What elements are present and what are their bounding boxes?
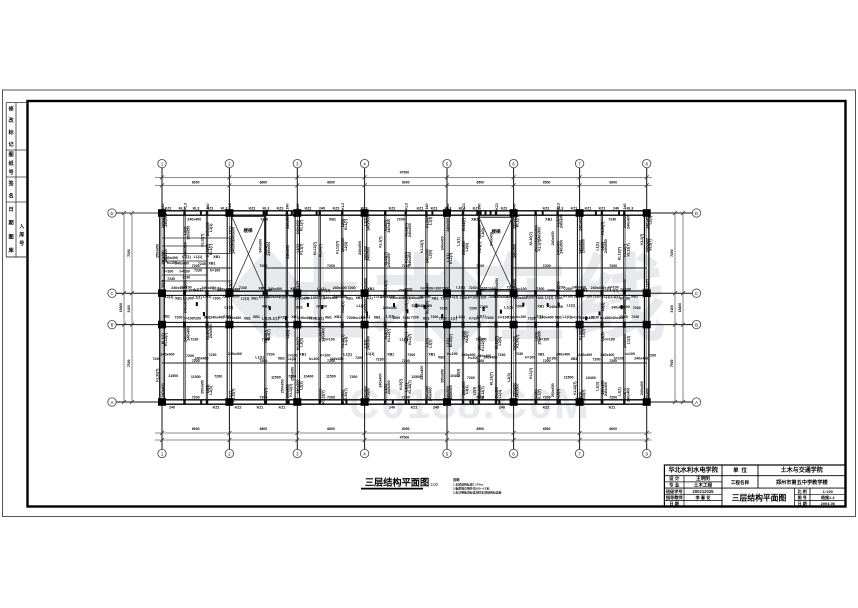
svg-text:KL12(7): KL12(7) — [408, 380, 412, 394]
svg-text:6600: 6600 — [192, 180, 200, 184]
svg-text:7200: 7200 — [279, 296, 287, 300]
svg-text:7200: 7200 — [232, 295, 240, 299]
svg-text:240x400: 240x400 — [333, 286, 347, 290]
svg-text:240: 240 — [433, 406, 439, 410]
svg-text:说明:: 说明: — [453, 477, 460, 482]
svg-text:8000: 8000 — [402, 180, 410, 184]
svg-text:XB1: XB1 — [209, 262, 216, 266]
svg-text:L1(1): L1(1) — [364, 296, 373, 300]
svg-text:KL3: KL3 — [557, 207, 564, 211]
svg-text:7200: 7200 — [193, 316, 201, 320]
svg-text:XB1: XB1 — [428, 352, 435, 356]
svg-text:记: 记 — [8, 140, 14, 148]
svg-text:期: 期 — [8, 219, 13, 227]
svg-text:7200: 7200 — [476, 264, 484, 268]
svg-text:240x400: 240x400 — [600, 353, 614, 357]
svg-text:KZ2: KZ2 — [389, 207, 396, 211]
svg-text:KZ1: KZ1 — [473, 207, 480, 211]
svg-text:XB1: XB1 — [258, 287, 265, 291]
svg-text:240x400: 240x400 — [183, 299, 187, 313]
svg-text:7200: 7200 — [175, 316, 183, 320]
svg-text:7200: 7200 — [402, 264, 410, 268]
svg-text:L1(1): L1(1) — [366, 352, 375, 356]
svg-text:11500: 11500 — [271, 376, 281, 380]
svg-text:KZ1: KZ1 — [279, 406, 286, 410]
svg-text:250x650: 250x650 — [280, 379, 284, 393]
svg-text:240x400: 240x400 — [440, 236, 444, 250]
svg-text:KL1(7): KL1(7) — [538, 388, 542, 400]
svg-text:XB1: XB1 — [296, 305, 303, 309]
svg-text:240x500: 240x500 — [560, 240, 564, 254]
svg-text:7200: 7200 — [288, 375, 296, 379]
svg-text:240x400: 240x400 — [579, 217, 583, 231]
svg-text:KL12(7): KL12(7) — [489, 371, 493, 385]
svg-text:240x600: 240x600 — [231, 227, 235, 241]
svg-text:240x400: 240x400 — [540, 316, 554, 320]
svg-text:7200: 7200 — [441, 287, 449, 291]
svg-text:240x500: 240x500 — [604, 239, 608, 253]
svg-text:7200: 7200 — [259, 264, 267, 268]
svg-text:L1(1): L1(1) — [203, 295, 212, 299]
svg-text:10400: 10400 — [450, 374, 460, 378]
svg-text:C: C — [695, 291, 698, 296]
svg-text:L2(3): L2(3) — [649, 215, 653, 224]
svg-text:7500: 7500 — [670, 359, 674, 367]
svg-text:240x600: 240x600 — [367, 388, 371, 402]
svg-text:240x400: 240x400 — [161, 383, 165, 397]
svg-text:240x400: 240x400 — [367, 336, 371, 350]
svg-text:专 业: 专 业 — [669, 481, 680, 488]
svg-text:240: 240 — [319, 207, 325, 211]
svg-text:7200: 7200 — [327, 396, 335, 400]
svg-text:L2(3): L2(3) — [582, 328, 586, 337]
svg-text:XB1: XB1 — [471, 218, 478, 222]
svg-text:土木与交通学院: 土木与交通学院 — [781, 466, 823, 474]
svg-text:240x500: 240x500 — [286, 215, 290, 229]
svg-text:240x600: 240x600 — [560, 214, 564, 228]
svg-text:7230: 7230 — [376, 358, 384, 362]
svg-text:7500: 7500 — [127, 359, 131, 367]
svg-text:7230: 7230 — [167, 277, 175, 281]
svg-text:240x400: 240x400 — [227, 316, 241, 320]
svg-text:7200: 7200 — [402, 359, 410, 363]
svg-text:L1(1): L1(1) — [450, 295, 459, 299]
svg-text:7230: 7230 — [262, 338, 270, 342]
svg-text:7200: 7200 — [574, 295, 582, 299]
svg-text:XB1: XB1 — [253, 315, 260, 319]
svg-text:7200: 7200 — [592, 358, 600, 362]
svg-text:7200: 7200 — [479, 295, 487, 299]
svg-text:KZ2: KZ2 — [235, 406, 242, 410]
svg-text:XB1: XB1 — [334, 315, 341, 319]
svg-text:240x500: 240x500 — [231, 240, 235, 254]
svg-text:L1(1): L1(1) — [357, 304, 366, 308]
svg-text:7200: 7200 — [259, 396, 267, 400]
svg-text:240x400: 240x400 — [387, 380, 391, 394]
svg-text:KL12(7): KL12(7) — [626, 243, 630, 257]
svg-text:7200: 7200 — [441, 296, 449, 300]
svg-text:7200: 7200 — [260, 218, 268, 222]
svg-text:L1(1): L1(1) — [193, 296, 202, 300]
svg-text:250x650: 250x650 — [440, 369, 444, 383]
svg-text:KZ1: KZ1 — [257, 406, 264, 410]
svg-text:6500: 6500 — [543, 427, 551, 431]
svg-text:KL12(7): KL12(7) — [618, 246, 622, 260]
svg-text:7230: 7230 — [469, 286, 477, 290]
svg-text:250x650: 250x650 — [155, 244, 159, 258]
svg-text:L1(1): L1(1) — [428, 339, 432, 348]
svg-text:L1(1): L1(1) — [315, 317, 324, 321]
svg-text:6600: 6600 — [327, 427, 335, 431]
svg-text:6600: 6600 — [260, 180, 268, 184]
svg-text:L2(3): L2(3) — [601, 302, 605, 311]
svg-text:h=100: h=100 — [477, 286, 487, 290]
svg-text:L1(1): L1(1) — [567, 304, 576, 308]
svg-text:h=100: h=100 — [183, 317, 193, 321]
svg-text:240: 240 — [425, 204, 429, 210]
svg-text:KL1(7): KL1(7) — [408, 333, 412, 345]
svg-text:h=100: h=100 — [210, 269, 220, 273]
svg-text:11500: 11500 — [326, 374, 336, 378]
svg-text:李 春 花: 李 春 花 — [695, 494, 712, 501]
svg-text:7200: 7200 — [476, 396, 484, 400]
svg-text:3.未注明板顶标高均同本层结构标高处: 3.未注明板顶标高均同本层结构标高处 — [453, 490, 502, 495]
svg-text:7200: 7200 — [648, 353, 656, 357]
svg-text:240x400: 240x400 — [626, 388, 630, 402]
svg-text:L1(1): L1(1) — [595, 241, 599, 250]
svg-text:KZ1: KZ1 — [599, 207, 606, 211]
svg-text:7230: 7230 — [222, 295, 230, 299]
svg-text:7200: 7200 — [543, 396, 551, 400]
svg-text:240x600: 240x600 — [164, 213, 168, 227]
svg-text:KZ1: KZ1 — [585, 207, 592, 211]
svg-text:XB1: XB1 — [163, 315, 170, 319]
svg-text:KL5(7): KL5(7) — [405, 299, 409, 311]
svg-text:7230: 7230 — [182, 276, 190, 280]
svg-text:KL5(7): KL5(7) — [341, 301, 345, 313]
svg-text:签: 签 — [7, 179, 14, 187]
svg-text:7200: 7200 — [355, 356, 363, 360]
svg-text:240x400: 240x400 — [390, 296, 404, 300]
svg-text:号: 号 — [8, 168, 13, 176]
svg-text:7200: 7200 — [536, 296, 544, 300]
svg-text:XB1: XB1 — [251, 296, 258, 300]
svg-text:47000: 47000 — [400, 171, 410, 175]
svg-text:240: 240 — [389, 406, 395, 410]
svg-text:h=100: h=100 — [547, 356, 557, 360]
svg-text:KL12(7): KL12(7) — [573, 381, 577, 395]
svg-text:240x600: 240x600 — [408, 223, 412, 237]
svg-text:7200: 7200 — [620, 315, 628, 319]
svg-text:6600: 6600 — [260, 427, 268, 431]
svg-text:h=100: h=100 — [608, 286, 618, 290]
svg-text:240: 240 — [296, 204, 300, 210]
svg-text:L1(1): L1(1) — [456, 315, 465, 319]
svg-text:h=100: h=100 — [516, 287, 526, 291]
svg-text:L2(3): L2(3) — [498, 336, 502, 345]
svg-text:240x400: 240x400 — [379, 374, 383, 388]
svg-text:L1(1): L1(1) — [428, 216, 432, 225]
svg-text:KZ1: KZ1 — [495, 203, 499, 210]
svg-text:7230: 7230 — [440, 307, 448, 311]
svg-text:7230: 7230 — [239, 286, 247, 290]
svg-text:日 期: 日 期 — [798, 500, 807, 506]
svg-text:XB1: XB1 — [290, 287, 297, 291]
svg-text:KL1(7): KL1(7) — [516, 215, 520, 227]
svg-text:7230: 7230 — [194, 269, 202, 273]
svg-text:L1(1): L1(1) — [498, 389, 502, 398]
svg-text:KL30(7): KL30(7) — [344, 388, 348, 402]
svg-text:7200: 7200 — [547, 289, 555, 293]
svg-text:240x600: 240x600 — [646, 388, 650, 402]
svg-text:A: A — [111, 400, 114, 405]
svg-text:库: 库 — [8, 246, 14, 254]
svg-text:KL3: KL3 — [405, 203, 409, 210]
svg-text:240x400: 240x400 — [484, 356, 498, 360]
svg-text:XB1: XB1 — [555, 315, 562, 319]
svg-text:7200: 7200 — [467, 376, 475, 380]
svg-text:L1(1): L1(1) — [504, 306, 513, 310]
svg-text:h=100: h=100 — [582, 295, 592, 299]
svg-text:240x500: 240x500 — [513, 244, 517, 258]
svg-text:KL1(7): KL1(7) — [299, 219, 303, 231]
svg-text:B: B — [695, 322, 698, 327]
svg-text:7230: 7230 — [153, 357, 161, 361]
svg-text:日 期: 日 期 — [669, 500, 679, 507]
svg-text:纸: 纸 — [8, 159, 14, 167]
svg-text:L1(1): L1(1) — [194, 255, 203, 259]
svg-text:KZ1: KZ1 — [417, 207, 424, 211]
svg-text:KL3: KL3 — [193, 207, 200, 211]
svg-text:240: 240 — [512, 204, 516, 210]
svg-text:7200: 7200 — [213, 296, 221, 300]
svg-text:7200: 7200 — [347, 316, 355, 320]
svg-text:KZ2: KZ2 — [543, 207, 550, 211]
svg-text:XB1: XB1 — [299, 352, 306, 356]
svg-text:XB1: XB1 — [438, 356, 445, 360]
svg-text:7200: 7200 — [507, 286, 515, 290]
svg-text:240x400: 240x400 — [549, 305, 563, 309]
svg-text:工程名称: 工程名称 — [731, 479, 750, 486]
svg-text:KL1(7): KL1(7) — [379, 236, 383, 248]
svg-text:8000: 8000 — [402, 427, 410, 431]
svg-text:240x500: 240x500 — [367, 217, 371, 231]
svg-text:KL12(7): KL12(7) — [646, 278, 650, 292]
svg-text:L1(1): L1(1) — [317, 287, 326, 291]
svg-text:7230: 7230 — [593, 295, 601, 299]
svg-text:240x400: 240x400 — [387, 219, 391, 233]
svg-text:h=100: h=100 — [183, 296, 193, 300]
svg-text:7200: 7200 — [349, 375, 357, 379]
svg-text:KL1(7): KL1(7) — [299, 243, 303, 255]
svg-text:6500: 6500 — [543, 180, 551, 184]
svg-text:KL5(7): KL5(7) — [465, 331, 469, 343]
svg-text:h=100: h=100 — [605, 338, 615, 342]
svg-text:240x500: 240x500 — [183, 242, 187, 256]
svg-text:7200: 7200 — [348, 286, 356, 290]
svg-text:L1(1): L1(1) — [361, 315, 370, 319]
svg-text:KL3: KL3 — [361, 207, 368, 211]
svg-text:KL3: KL3 — [263, 207, 270, 211]
svg-text:240x400: 240x400 — [330, 357, 344, 361]
svg-text:6600: 6600 — [327, 180, 335, 184]
svg-text:结施1.4: 结施1.4 — [820, 494, 835, 500]
svg-text:图 号: 图 号 — [798, 494, 807, 500]
svg-text:h=100: h=100 — [516, 315, 526, 319]
svg-text:L2(3): L2(3) — [481, 227, 485, 236]
svg-text:3100: 3100 — [670, 305, 674, 313]
svg-text:L1(1): L1(1) — [343, 352, 352, 356]
svg-text:XB1: XB1 — [329, 218, 336, 222]
svg-text:XB1: XB1 — [278, 357, 285, 361]
svg-text:240: 240 — [286, 204, 290, 210]
svg-text:KL1(7): KL1(7) — [640, 233, 644, 245]
svg-text:L2(3): L2(3) — [344, 241, 348, 250]
svg-text:h=100: h=100 — [621, 287, 631, 291]
svg-text:47000: 47000 — [400, 436, 410, 440]
svg-text:D: D — [110, 211, 113, 216]
svg-text:入: 入 — [19, 224, 24, 230]
svg-text:200212025: 200212025 — [693, 489, 715, 494]
svg-text:h=100: h=100 — [539, 338, 549, 342]
svg-text:7200: 7200 — [564, 287, 572, 291]
svg-text:KL12(7): KL12(7) — [462, 217, 466, 231]
svg-text:KZ2: KZ2 — [501, 207, 508, 211]
svg-text:XB1: XB1 — [213, 255, 220, 259]
svg-text:h=100: h=100 — [614, 357, 624, 361]
svg-text:240x400: 240x400 — [228, 352, 242, 356]
svg-text:L1(1): L1(1) — [602, 295, 611, 299]
svg-text:7200: 7200 — [327, 264, 335, 268]
svg-text:KL30(7): KL30(7) — [516, 334, 520, 348]
svg-text:KL12(7): KL12(7) — [200, 233, 204, 247]
svg-text:h=100: h=100 — [163, 270, 173, 274]
svg-text:L1(1): L1(1) — [618, 387, 622, 396]
svg-text:KL12(7): KL12(7) — [322, 390, 326, 404]
svg-text:7200: 7200 — [402, 396, 410, 400]
svg-text:L2(3): L2(3) — [507, 372, 511, 381]
svg-text:L1(1): L1(1) — [209, 223, 213, 232]
svg-text:240x400: 240x400 — [489, 232, 493, 246]
svg-text:KL30(7): KL30(7) — [161, 279, 165, 293]
svg-text:240x600: 240x600 — [286, 245, 290, 259]
svg-text:7200: 7200 — [214, 374, 222, 378]
svg-text:10400: 10400 — [304, 375, 314, 379]
svg-text:KZ1: KZ1 — [571, 207, 578, 211]
svg-text:L1(1): L1(1) — [182, 255, 191, 259]
svg-text:3100: 3100 — [127, 305, 131, 313]
svg-text:KZ2: KZ2 — [333, 207, 340, 211]
svg-text:240x500: 240x500 — [367, 247, 371, 261]
svg-text:L1(1): L1(1) — [400, 338, 409, 342]
svg-text:XB1: XB1 — [423, 317, 430, 321]
svg-text:7200: 7200 — [407, 353, 415, 357]
svg-text:XB1: XB1 — [538, 352, 545, 356]
svg-text:王明明: 王明明 — [696, 475, 710, 482]
svg-text:KL30(7): KL30(7) — [155, 368, 159, 382]
svg-text:7230: 7230 — [631, 315, 639, 319]
svg-text:h=100: h=100 — [421, 287, 431, 291]
svg-text:改: 改 — [8, 116, 14, 124]
svg-text:KL30(7): KL30(7) — [601, 221, 605, 235]
svg-text:h=100: h=100 — [476, 338, 486, 342]
svg-text:XB1: XB1 — [631, 294, 638, 298]
svg-text:XB1: XB1 — [262, 305, 269, 309]
svg-text:7200: 7200 — [543, 264, 551, 268]
svg-text:KL3: KL3 — [445, 207, 452, 211]
svg-text:7230: 7230 — [555, 296, 563, 300]
svg-text:L1(1): L1(1) — [456, 285, 465, 289]
svg-text:240x400: 240x400 — [387, 253, 391, 267]
svg-text:240x600: 240x600 — [259, 239, 263, 253]
svg-text:11500: 11500 — [191, 375, 201, 379]
svg-text:h=100: h=100 — [625, 352, 635, 356]
svg-text:KL12(7): KL12(7) — [231, 388, 235, 402]
svg-text:L1(1): L1(1) — [288, 357, 297, 361]
svg-text:h=100: h=100 — [324, 338, 334, 342]
svg-text:6600: 6600 — [192, 427, 200, 431]
svg-text:XB1: XB1 — [367, 287, 374, 291]
svg-text:KL5(7): KL5(7) — [399, 378, 403, 390]
svg-text:240x400: 240x400 — [268, 287, 282, 291]
svg-text:18200: 18200 — [119, 303, 123, 313]
svg-text:KL12(7): KL12(7) — [387, 328, 391, 342]
svg-text:L1(1): L1(1) — [241, 297, 250, 301]
svg-text:KL30(7): KL30(7) — [319, 243, 323, 257]
svg-text:7230: 7230 — [507, 316, 515, 320]
svg-text:楼梯: 楼梯 — [244, 227, 253, 234]
svg-text:L2(3): L2(3) — [299, 337, 303, 346]
svg-text:250x650: 250x650 — [551, 383, 555, 397]
svg-text:7200: 7200 — [469, 306, 477, 310]
svg-text:库: 库 — [19, 232, 24, 239]
svg-text:KZ2: KZ2 — [165, 207, 172, 211]
svg-text:7230: 7230 — [633, 306, 641, 310]
svg-text:7200: 7200 — [515, 304, 523, 308]
svg-text:h=100: h=100 — [431, 287, 441, 291]
svg-text:240: 240 — [499, 406, 505, 410]
svg-text:B: B — [111, 322, 114, 327]
svg-text:KZ1: KZ1 — [609, 406, 616, 410]
svg-text:KL12(7): KL12(7) — [164, 332, 168, 346]
svg-text:7200: 7200 — [127, 249, 131, 257]
svg-text:L1(1): L1(1) — [255, 356, 264, 360]
svg-text:XB1: XB1 — [581, 288, 588, 292]
svg-text:KL1(7): KL1(7) — [478, 241, 482, 253]
svg-text:L1(1): L1(1) — [225, 305, 234, 309]
svg-text:郑州市第五中学教学楼: 郑州市第五中学教学楼 — [776, 478, 829, 486]
svg-text:240x400: 240x400 — [556, 353, 570, 357]
svg-text:7200: 7200 — [267, 353, 275, 357]
svg-text:7200: 7200 — [186, 354, 194, 358]
svg-text:250x650: 250x650 — [200, 380, 204, 394]
svg-text:250x650: 250x650 — [582, 239, 586, 253]
svg-text:KL5(7): KL5(7) — [384, 280, 388, 292]
svg-text:三层结构平面图: 三层结构平面图 — [732, 493, 787, 503]
svg-text:240x400: 240x400 — [210, 316, 224, 320]
svg-text:240x500: 240x500 — [358, 241, 362, 255]
svg-text:XB1: XB1 — [374, 316, 381, 320]
svg-text:h=100: h=100 — [306, 296, 316, 300]
svg-text:240x400: 240x400 — [187, 218, 201, 222]
svg-text:D: D — [695, 211, 698, 216]
svg-text:7200: 7200 — [609, 396, 617, 400]
svg-text:h=100: h=100 — [468, 356, 478, 360]
svg-text:240x400: 240x400 — [161, 353, 175, 357]
svg-text:华北水利水电学院: 华北水利水电学院 — [668, 466, 718, 474]
svg-text:h=100: h=100 — [420, 295, 430, 299]
svg-text:h=100: h=100 — [181, 286, 191, 290]
